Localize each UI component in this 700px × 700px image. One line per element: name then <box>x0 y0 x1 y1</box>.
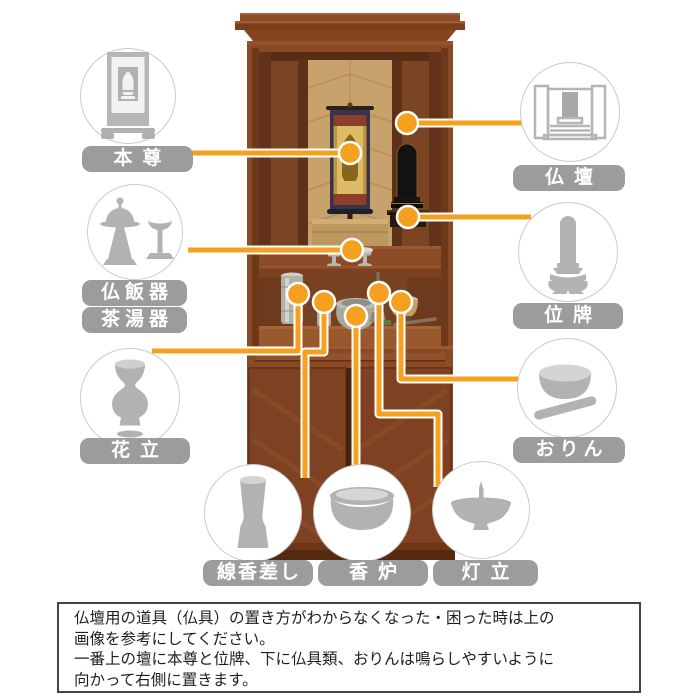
tohtate-label: 灯立 <box>433 560 538 586</box>
placement-diagram: 本尊 仏飯器 茶湯器 花立 仏壇 位牌 おりん 線香差し 香炉 灯立 仏壇用の道… <box>0 0 700 700</box>
hanging-scroll-icon <box>93 50 163 142</box>
note-line-2: 画像を参考にしてください。 <box>74 630 624 651</box>
ihai-label: 位牌 <box>513 303 623 329</box>
butsudan-label: 仏壇 <box>513 165 625 191</box>
note-line-4: 向かって右側に置きます。 <box>74 671 624 692</box>
incense-stick-holder-icon <box>227 474 279 552</box>
altar-cabinet-icon <box>532 74 608 150</box>
note-line-1: 仏壇用の道具（仏具）の置き方がわからなくなった・困った時は上の <box>74 609 624 630</box>
ihai-circle <box>518 202 618 302</box>
memorial-tablet-icon <box>536 210 600 294</box>
butsuhanki-label: 仏飯器 <box>82 280 187 306</box>
senkousashi-dot <box>313 291 335 313</box>
hanatate-circle <box>80 348 180 448</box>
bell-icon <box>527 355 607 421</box>
note-box: 仏壇用の道具（仏具）の置き方がわからなくなった・困った時は上の 画像を参考にして… <box>57 602 641 693</box>
orin-dot <box>390 291 412 313</box>
orin-circle <box>517 338 617 438</box>
senkousashi-label: 線香差し <box>203 560 313 586</box>
callout-dots <box>287 112 419 327</box>
chatouki-label: 茶湯器 <box>82 307 187 333</box>
honzon-dot <box>339 142 361 164</box>
honzon-circle <box>80 48 176 144</box>
kouro-circle <box>313 464 411 562</box>
tohtate-circle <box>432 461 530 559</box>
kouro-dot <box>345 305 367 327</box>
butsudan-circle <box>520 62 620 162</box>
orin-label: おりん <box>513 437 625 463</box>
incense-burner-icon <box>320 482 404 544</box>
honzon-label: 本尊 <box>82 146 193 172</box>
butsudan-dot <box>396 112 418 134</box>
offering-cups-icon <box>96 196 174 268</box>
ihai-dot <box>397 206 419 228</box>
hanatate-dot <box>287 283 309 305</box>
kouro-label: 香炉 <box>318 560 428 586</box>
note-line-3: 一番上の壇に本尊と位牌、下に仏具類、おりんは鳴らしやすいように <box>74 650 624 671</box>
butsuhanki-dot <box>341 239 363 261</box>
hanatate-label: 花立 <box>80 438 190 464</box>
senkousashi-circle <box>204 464 302 562</box>
tohtate-dot <box>368 282 390 304</box>
candle-stand-icon <box>443 479 519 541</box>
flower-vase-icon <box>97 356 163 440</box>
butsuhanki-circle <box>87 184 183 280</box>
